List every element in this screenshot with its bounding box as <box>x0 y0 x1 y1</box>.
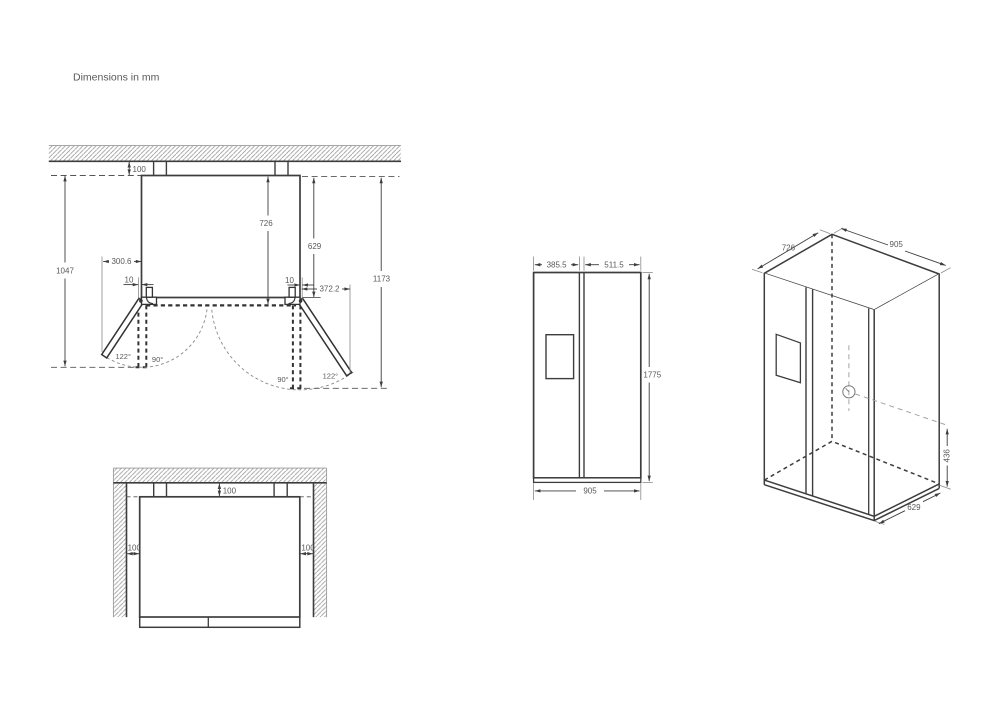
svg-text:905: 905 <box>583 487 597 496</box>
svg-text:100: 100 <box>223 486 237 495</box>
svg-text:905: 905 <box>890 240 904 249</box>
svg-text:726: 726 <box>782 243 796 252</box>
svg-text:10: 10 <box>285 276 294 285</box>
svg-text:629: 629 <box>907 503 921 512</box>
svg-text:385.5: 385.5 <box>547 260 568 269</box>
svg-text:100: 100 <box>133 165 147 174</box>
svg-text:1173: 1173 <box>373 274 391 283</box>
svg-text:122°: 122° <box>115 352 131 361</box>
svg-text:629: 629 <box>308 242 322 251</box>
svg-text:Dimensions in mm: Dimensions in mm <box>73 72 160 84</box>
svg-text:100: 100 <box>128 544 142 553</box>
svg-text:436: 436 <box>943 449 952 463</box>
svg-text:100: 100 <box>301 544 315 553</box>
svg-text:726: 726 <box>259 219 273 228</box>
svg-text:511.5: 511.5 <box>604 260 624 269</box>
svg-text:1775: 1775 <box>643 371 661 380</box>
svg-text:300.6: 300.6 <box>111 257 132 266</box>
svg-text:372.2: 372.2 <box>319 285 340 294</box>
svg-text:90°: 90° <box>277 375 288 384</box>
svg-text:1047: 1047 <box>56 266 74 275</box>
svg-text:10: 10 <box>125 275 134 284</box>
svg-text:122°: 122° <box>323 371 339 380</box>
svg-text:90°: 90° <box>152 355 163 364</box>
